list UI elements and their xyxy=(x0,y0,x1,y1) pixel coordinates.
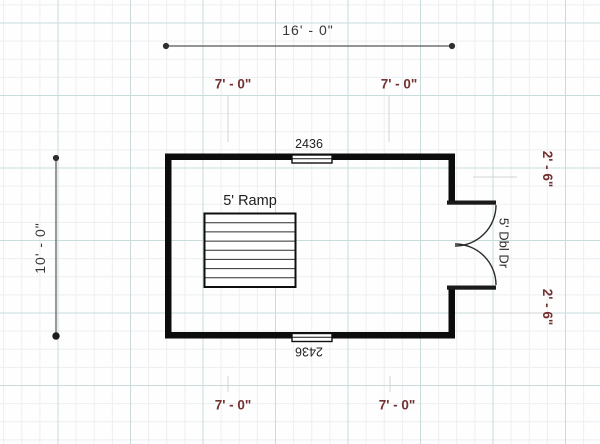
top-left-offset-label: 7' - 0" xyxy=(215,77,252,91)
door-swing-arc-bottom xyxy=(455,244,496,285)
floorplan-canvas[interactable]: 16' - 0" 7' - 0" 7' - 0" 10' - 0" 2436 5… xyxy=(0,0,600,444)
door-leaf-bottom xyxy=(447,286,496,290)
dimension-endpoint-dot xyxy=(163,43,169,49)
wall-left xyxy=(165,154,172,339)
door-bottom-offset-label: 2' - 6" xyxy=(540,289,554,326)
window-bottom-size-label: 2436 xyxy=(295,345,323,358)
window-top-size-label: 2436 xyxy=(295,138,323,151)
bottom-right-offset-label: 7' - 0" xyxy=(379,398,416,412)
ramp-symbol xyxy=(205,214,296,288)
double-door-label: 5' Dbl Dr xyxy=(498,218,511,268)
wall-right-lower xyxy=(449,290,456,339)
dimension-endpoint-dot xyxy=(52,332,59,339)
double-door-symbol xyxy=(447,201,496,290)
top-right-offset-label: 7' - 0" xyxy=(381,77,418,91)
door-leaf-top xyxy=(447,201,496,205)
overall-width-dimension-label: 16' - 0" xyxy=(282,23,333,37)
dimension-endpoint-dot xyxy=(53,155,59,161)
dimension-line-overall-height xyxy=(52,155,59,340)
door-swing-arc-top xyxy=(455,205,496,246)
ramp-label: 5' Ramp xyxy=(223,194,277,209)
bottom-left-offset-label: 7' - 0" xyxy=(215,398,252,412)
door-top-offset-label: 2' - 6" xyxy=(540,151,554,188)
window-symbols xyxy=(292,155,332,342)
dimension-line-overall-width xyxy=(163,43,455,49)
wall-right-upper xyxy=(449,154,456,201)
dimension-endpoint-dot xyxy=(449,43,455,49)
overall-height-dimension-label: 10' - 0" xyxy=(33,222,47,273)
